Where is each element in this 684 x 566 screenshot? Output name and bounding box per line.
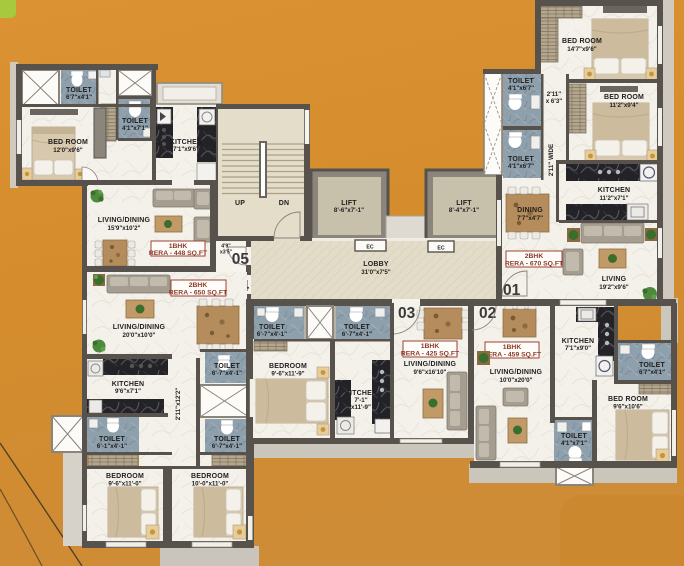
svg-text:RERA - 459 SQ.FT: RERA - 459 SQ.FT [483, 352, 542, 359]
svg-text:7'7"x4'7": 7'7"x4'7" [517, 215, 543, 222]
svg-text:UP: UP [235, 200, 245, 207]
svg-text:BEDROOM: BEDROOM [191, 473, 229, 480]
svg-text:BED ROOM: BED ROOM [608, 396, 648, 403]
svg-text:4'1"x6'7": 4'1"x6'7" [508, 163, 534, 170]
svg-text:TOILET: TOILET [508, 78, 534, 85]
svg-text:LIVING/DINING: LIVING/DINING [113, 324, 166, 331]
svg-text:19'2"x9'6": 19'2"x9'6" [599, 284, 629, 291]
svg-text:EC: EC [366, 245, 373, 251]
svg-text:2'11" WIDE: 2'11" WIDE [548, 144, 555, 176]
svg-text:TOILET: TOILET [344, 324, 370, 331]
svg-text:KITCHEN: KITCHEN [562, 338, 595, 345]
svg-text:6'-7"x4'-1": 6'-7"x4'-1" [212, 443, 242, 450]
svg-text:10'0"x20'0": 10'0"x20'0" [500, 377, 533, 384]
svg-text:TOILET: TOILET [561, 433, 587, 440]
svg-text:x11'-9": x11'-9" [351, 404, 371, 411]
svg-text:7'1"x9'6": 7'1"x9'6" [173, 146, 199, 153]
svg-text:TOILET: TOILET [214, 363, 240, 370]
svg-text:31'0"x7'5": 31'0"x7'5" [361, 269, 391, 276]
svg-text:LIVING/DINING: LIVING/DINING [98, 217, 151, 224]
svg-text:12'0"x9'6": 12'0"x9'6" [53, 147, 83, 154]
svg-text:6'7"x4'1": 6'7"x4'1" [639, 369, 665, 376]
svg-text:2'11"x12'2": 2'11"x12'2" [175, 388, 182, 421]
svg-text:11'2"x7'1": 11'2"x7'1" [599, 195, 628, 202]
svg-text:TOILET: TOILET [259, 324, 285, 331]
svg-text:7'-1": 7'-1" [354, 397, 367, 404]
svg-text:2'11": 2'11" [547, 91, 561, 98]
svg-text:02: 02 [479, 305, 496, 322]
svg-text:15'9"x10'2": 15'9"x10'2" [108, 225, 141, 232]
svg-text:LIFT: LIFT [456, 200, 472, 207]
svg-text:DN: DN [279, 200, 290, 207]
svg-text:9'6"x10'6": 9'6"x10'6" [613, 404, 643, 411]
svg-text:11'2"x9'4": 11'2"x9'4" [609, 102, 638, 109]
svg-text:LIFT: LIFT [341, 200, 357, 207]
svg-text:LOBBY: LOBBY [363, 261, 389, 268]
svg-text:TOILET: TOILET [122, 118, 148, 125]
svg-text:RERA - 650 SQ.FT: RERA - 650 SQ.FT [169, 290, 228, 297]
svg-text:14'7"x9'6": 14'7"x9'6" [567, 46, 597, 53]
svg-text:6'-7"x4'-1": 6'-7"x4'-1" [212, 370, 242, 377]
svg-text:RERA - 448 SQ.FT: RERA - 448 SQ.FT [149, 250, 208, 257]
svg-text:TOILET: TOILET [508, 156, 534, 163]
svg-text:BEDROOM: BEDROOM [106, 473, 144, 480]
svg-text:BED ROOM: BED ROOM [604, 94, 644, 101]
svg-text:9'6"x7'1": 9'6"x7'1" [115, 388, 141, 395]
svg-text:1BHK: 1BHK [421, 343, 440, 350]
svg-text:LIVING/DINING: LIVING/DINING [404, 361, 457, 368]
svg-text:EC: EC [437, 246, 444, 252]
svg-text:TOILET: TOILET [639, 362, 665, 369]
svg-text:4'1"x6'7": 4'1"x6'7" [508, 85, 534, 92]
svg-text:05: 05 [232, 251, 250, 268]
svg-text:TOILET: TOILET [214, 436, 240, 443]
svg-text:BED ROOM: BED ROOM [562, 38, 602, 45]
svg-text:DINING: DINING [517, 207, 543, 214]
svg-text:BED ROOM: BED ROOM [48, 139, 88, 146]
svg-text:2BHK: 2BHK [189, 282, 208, 289]
svg-text:RERA - 425 SQ.FT: RERA - 425 SQ.FT [401, 351, 460, 358]
svg-text:6'7"x4'1": 6'7"x4'1" [66, 94, 92, 101]
svg-text:8'-4"x7'-1": 8'-4"x7'-1" [449, 207, 479, 214]
svg-text:TOILET: TOILET [66, 87, 92, 94]
svg-text:x 6'3": x 6'3" [546, 98, 563, 105]
svg-text:7'1"x9'0": 7'1"x9'0" [565, 345, 591, 352]
svg-text:4'1"x7'1": 4'1"x7'1" [122, 125, 148, 132]
svg-text:TOILET: TOILET [99, 436, 125, 443]
svg-text:9'-6"x11'-9": 9'-6"x11'-9" [271, 371, 304, 378]
svg-text:RERA - 670 SQ.FT: RERA - 670 SQ.FT [505, 261, 564, 268]
svg-text:1BHK: 1BHK [503, 344, 522, 351]
svg-text:6'-7"x4'-1": 6'-7"x4'-1" [342, 331, 372, 338]
svg-text:2BHK: 2BHK [525, 253, 544, 260]
svg-text:9'-6"x11'-0": 9'-6"x11'-0" [108, 481, 141, 488]
svg-text:LIVING/DINING: LIVING/DINING [490, 369, 543, 376]
svg-text:LIVING: LIVING [602, 276, 627, 283]
svg-text:KITCHEN: KITCHEN [170, 139, 203, 146]
svg-text:BEDROOM: BEDROOM [269, 363, 307, 370]
svg-text:6'-1"x4'-1": 6'-1"x4'-1" [97, 443, 127, 450]
svg-text:KITCHEN: KITCHEN [345, 390, 378, 397]
svg-text:6'-7"x4'-1": 6'-7"x4'-1" [257, 331, 287, 338]
svg-text:20'0"x10'0": 20'0"x10'0" [123, 332, 156, 339]
svg-text:KITCHEN: KITCHEN [112, 381, 145, 388]
svg-text:8'-6"x7'-1": 8'-6"x7'-1" [334, 207, 364, 214]
svg-text:KITCHEN: KITCHEN [598, 187, 631, 194]
svg-text:4'1"x7'1": 4'1"x7'1" [561, 440, 587, 447]
svg-text:03: 03 [398, 305, 416, 322]
svg-text:1BHK: 1BHK [169, 243, 188, 250]
svg-text:10'-0"x11'-0": 10'-0"x11'-0" [192, 481, 229, 488]
svg-text:9'6"x16'10": 9'6"x16'10" [414, 369, 447, 376]
